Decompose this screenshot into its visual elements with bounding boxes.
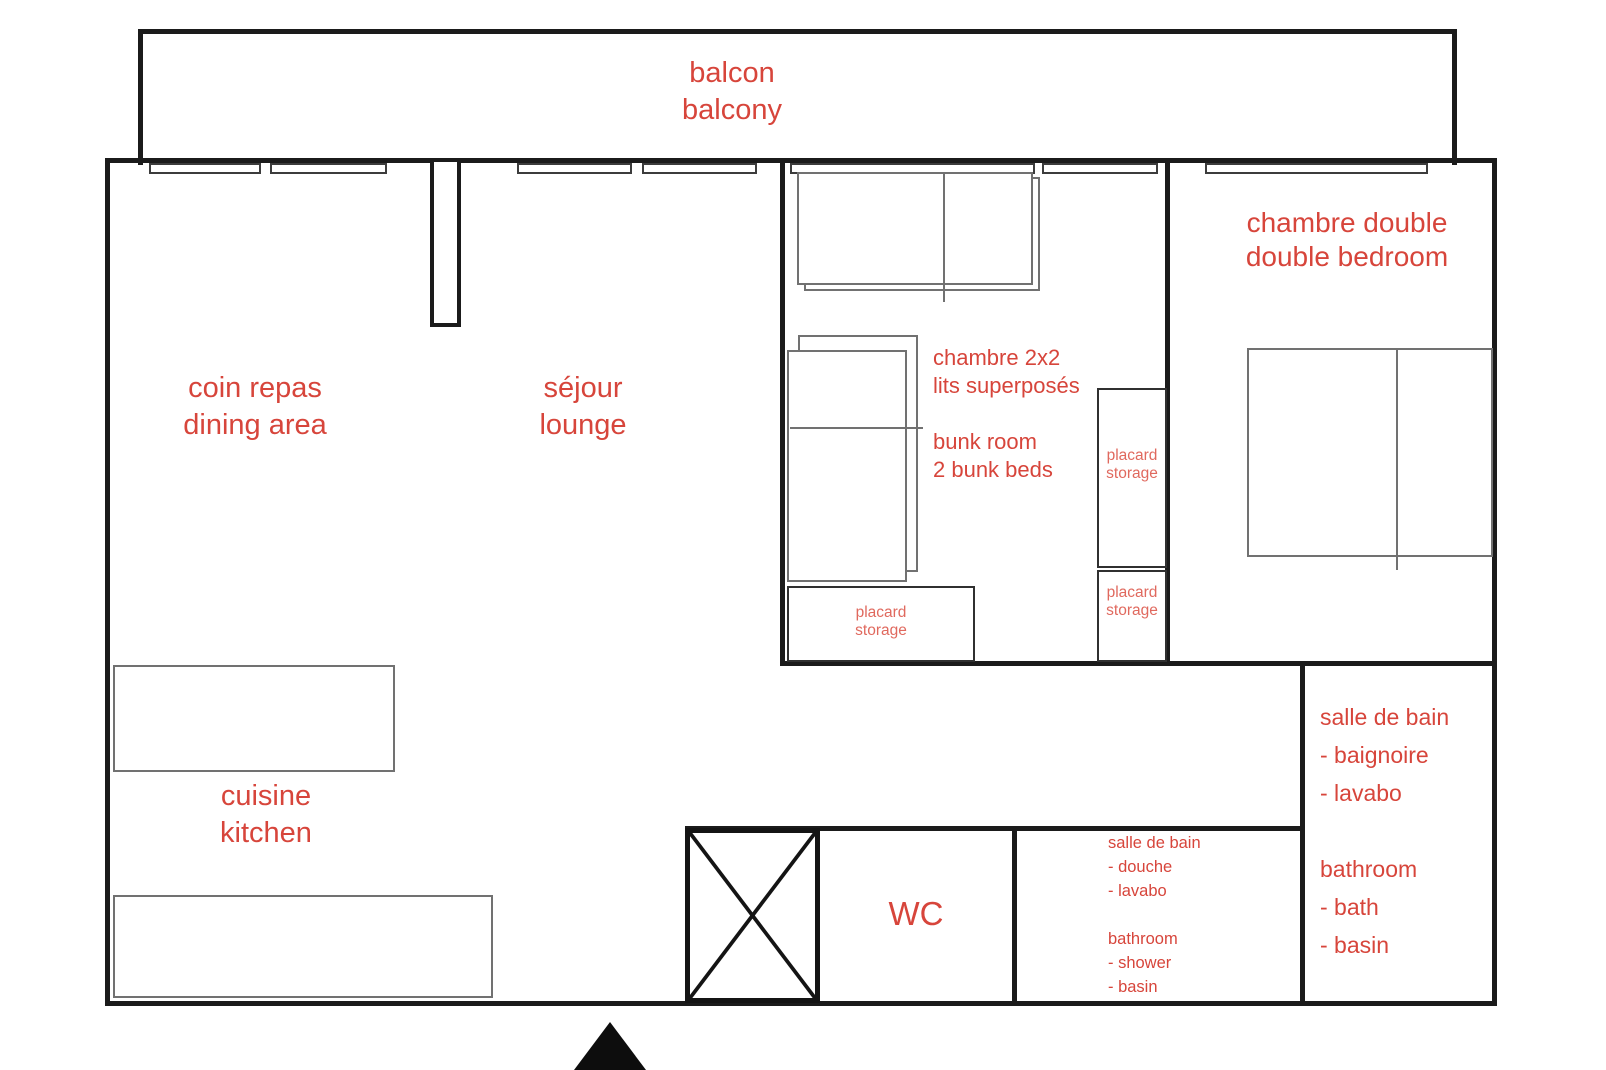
wall-bunkroom-left [780,158,785,666]
bunk-bed-divider [943,172,945,302]
entrance-arrow-icon [574,1022,646,1070]
window [642,163,757,174]
window [1042,163,1158,174]
bathroom-shower-fr-item: - lavabo [1108,879,1201,903]
balcony-label: balcon balcony [582,55,882,129]
bathroom-bath-label: salle de bain - baignoire - lavabo bathr… [1320,698,1449,964]
bunk-room-label-en2: 2 bunk beds [933,456,1053,484]
floor-plan: balcon balcony coin repas [0,0,1606,1070]
storage-label-en: storage [1095,465,1169,483]
crossed-box-symbol [685,828,820,1003]
window [1205,163,1428,174]
window [149,163,261,174]
bathroom-bath-en-item: - bath [1320,888,1449,926]
double-bedroom-label-en: double bedroom [1197,240,1497,274]
bunk-room-label-en: bunk room 2 bunk beds [933,428,1053,484]
kitchen-counter [113,665,395,772]
lounge-label-fr: séjour [433,370,733,407]
storage-label-fr: placard [1095,584,1169,602]
storage-label-fr: placard [787,604,975,622]
bunk-room-label-en1: bunk room [933,428,1053,456]
storage-label: placard storage [787,604,975,640]
wall-wc-right [1012,826,1017,1006]
double-bed-divider [1396,348,1398,570]
kitchen-counter [113,895,493,998]
kitchen-label-en: kitchen [116,815,416,852]
bathroom-bath-fr-title: salle de bain [1320,698,1449,736]
partition-stub [430,158,461,327]
bunk-room-label-fr1: chambre 2x2 [933,344,1080,372]
kitchen-label: cuisine kitchen [116,778,416,852]
storage-label-fr: placard [1095,447,1169,465]
bunk-room-label-fr2: lits superposés [933,372,1080,400]
bathroom-shower-fr-title: salle de bain [1108,831,1201,855]
storage-label-en: storage [787,622,975,640]
bathroom-shower-label: salle de bain - douche - lavabo bathroom… [1108,831,1201,999]
double-bedroom-label: chambre double double bedroom [1197,206,1497,274]
dining-area-label: coin repas dining area [105,370,405,444]
bunk-bed-top [797,172,1033,285]
bunk-bed-side [787,350,907,582]
lounge-label-en: lounge [433,407,733,444]
double-bedroom-label-fr: chambre double [1197,206,1497,240]
bathroom-shower-fr-item: - douche [1108,855,1201,879]
dining-area-label-en: dining area [105,407,405,444]
bathroom-bath-fr-item: - baignoire [1320,736,1449,774]
bunk-room-label-fr: chambre 2x2 lits superposés [933,344,1080,400]
storage-label: placard storage [1095,584,1169,620]
crossed-box-diagonals [690,833,815,998]
storage-label: placard storage [1095,447,1169,483]
window [270,163,387,174]
lounge-label: séjour lounge [433,370,733,444]
kitchen-label-fr: cuisine [116,778,416,815]
dining-area-label-fr: coin repas [105,370,405,407]
window [517,163,632,174]
bathroom-shower-en-title: bathroom [1108,927,1201,951]
double-bed [1247,348,1493,557]
bathroom-bath-fr-item: - lavabo [1320,774,1449,812]
balcony-label-fr: balcon [582,55,882,92]
bunk-bed-divider [790,427,923,429]
balcony-label-en: balcony [582,92,882,129]
bathroom-bath-en-title: bathroom [1320,850,1449,888]
spacer [1320,812,1449,850]
bathroom-bath-en-item: - basin [1320,926,1449,964]
wc-label: WC [820,893,1012,935]
bathroom-shower-en-item: - basin [1108,975,1201,999]
wall-bathroom-left [1300,661,1305,1006]
storage-label-en: storage [1095,602,1169,620]
bathroom-shower-en-item: - shower [1108,951,1201,975]
spacer [1108,903,1201,927]
